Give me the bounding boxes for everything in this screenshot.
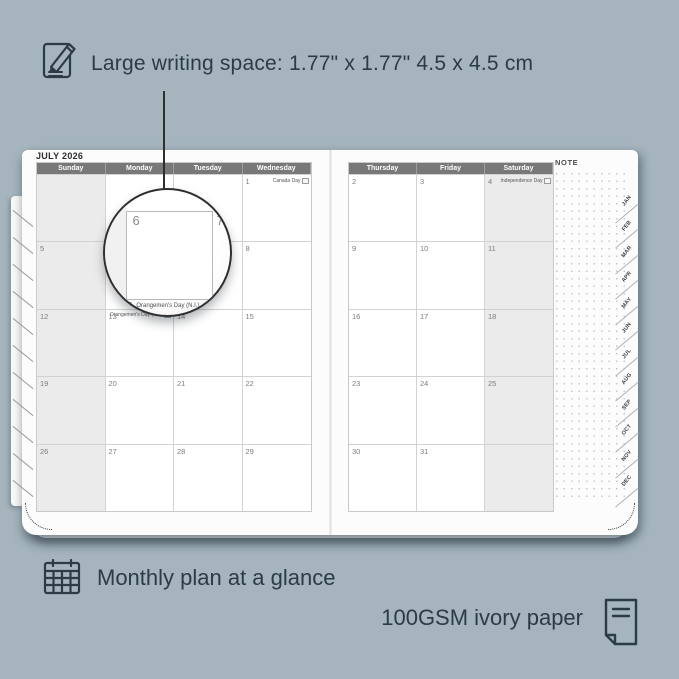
hatch-line: [13, 372, 34, 389]
day-cell: 28: [174, 444, 243, 511]
month-tab-label: SEP: [621, 398, 633, 411]
day-number: 25: [488, 379, 496, 388]
day-number: 22: [246, 379, 254, 388]
month-tab: APR: [616, 265, 638, 291]
day-number: 20: [109, 379, 117, 388]
month-tab-label: MAY: [621, 296, 633, 309]
page-edge-hatch: [10, 214, 38, 514]
day-number: 4: [488, 177, 492, 186]
day-cell: 26: [37, 444, 106, 511]
right-page-grid: Thursday Friday Saturday 2 3 4 Independe…: [348, 162, 554, 512]
day-cell: 14: [174, 309, 243, 376]
day-cell: 11: [485, 241, 553, 308]
day-number: 24: [420, 379, 428, 388]
day-cell: 22: [243, 376, 312, 443]
month-tab: MAR: [616, 239, 638, 265]
day-number: 29: [246, 447, 254, 456]
day-number: 17: [420, 312, 428, 321]
day-number: 1: [246, 177, 250, 186]
day-cell: 18: [485, 309, 553, 376]
magnified-weekend-column: [105, 205, 126, 303]
hatch-line: [13, 345, 34, 362]
day-number: 5: [40, 244, 44, 253]
day-number: 26: [40, 447, 48, 456]
day-cell: 9: [349, 241, 417, 308]
flag-icon: [544, 178, 551, 184]
month-tab-label: NOV: [621, 449, 633, 463]
month-tab: AUG: [616, 367, 638, 393]
magnified-holiday-row: 13 Orangemen's Day (N.I.): [105, 302, 230, 309]
weekday-header: Sunday: [37, 163, 106, 174]
month-tab-label: DEC: [621, 475, 633, 488]
pencil-note-icon: [40, 36, 82, 84]
paper-annotation-text: 100GSM ivory paper: [381, 601, 583, 635]
day-number: 30: [352, 447, 360, 456]
day-number: 28: [177, 447, 185, 456]
month-tab-label: APR: [621, 271, 633, 284]
magnified-peek-day: 13: [125, 302, 133, 309]
day-number: 31: [420, 447, 428, 456]
day-number: 19: [40, 379, 48, 388]
day-cell: 27: [106, 444, 175, 511]
magnified-holiday-text: Orangemen's Day (N.I.): [136, 303, 199, 309]
month-tab-label: OCT: [621, 424, 633, 437]
weekday-header: Saturday: [485, 163, 553, 174]
month-tab-label: JAN: [621, 194, 633, 207]
hatch-line: [13, 399, 34, 416]
day-cell: 29: [243, 444, 312, 511]
day-cell: [485, 444, 553, 511]
day-cell: 15: [243, 309, 312, 376]
month-title: JULY 2026: [36, 151, 83, 161]
hatch-line: [13, 237, 34, 254]
holiday-label: Canada Day: [273, 178, 309, 184]
month-tab: OCT: [616, 418, 638, 444]
day-cell: 31: [417, 444, 485, 511]
weekday-header: Friday: [417, 163, 485, 174]
day-number: 3: [420, 177, 424, 186]
holiday-text: Independence Day: [501, 178, 543, 184]
day-number: 15: [246, 312, 254, 321]
callout-connector-line: [163, 91, 165, 189]
day-number: 10: [420, 244, 428, 253]
month-tab: MAY: [616, 290, 638, 316]
month-tab: FEB: [616, 214, 638, 240]
month-tab-label: JUL: [621, 348, 633, 360]
hatch-line: [13, 426, 34, 443]
bottom-annotation-text: Monthly plan at a glance: [97, 561, 336, 595]
month-tabs: JAN FEB MAR APR MAY JUN JUL AUG SEP OCT …: [616, 188, 638, 494]
day-cell: 16: [349, 309, 417, 376]
hatch-line: [13, 264, 34, 281]
magnified-day-number: 6: [133, 213, 140, 228]
flag-icon: [302, 178, 309, 184]
magnified-day-number: 7: [217, 213, 224, 228]
month-tab: DEC: [616, 469, 638, 495]
day-number: 9: [352, 244, 356, 253]
holiday-label: Independence Day: [501, 178, 551, 184]
page-gutter: [329, 150, 332, 535]
month-tab: JUL: [616, 341, 638, 367]
day-cell: 30: [349, 444, 417, 511]
month-tab: NOV: [616, 443, 638, 469]
day-cell: [37, 174, 106, 241]
day-number: 2: [352, 177, 356, 186]
day-cell: 23: [349, 376, 417, 443]
weekday-header: Thursday: [349, 163, 417, 174]
hatch-line: [13, 210, 34, 227]
paper-icon: [599, 596, 643, 648]
month-tab-label: JUN: [621, 322, 633, 335]
day-number: 18: [488, 312, 496, 321]
day-cell: 19: [37, 376, 106, 443]
month-tab-label: AUG: [621, 372, 634, 386]
day-number: 11: [488, 244, 496, 253]
corner-stitch-left: [25, 503, 52, 530]
day-number: 12: [40, 312, 48, 321]
day-cell: 17: [417, 309, 485, 376]
weekday-header: Tuesday: [174, 163, 243, 174]
weekday-header: Wednesday: [243, 163, 312, 174]
day-number: 27: [109, 447, 117, 456]
flag-icon: [203, 303, 210, 309]
day-number: 21: [177, 379, 185, 388]
day-cell: 25: [485, 376, 553, 443]
day-cell: 10: [417, 241, 485, 308]
hatch-line: [13, 291, 34, 308]
day-cell: 24: [417, 376, 485, 443]
day-cell: 3: [417, 174, 485, 241]
note-label: NOTE: [555, 158, 578, 167]
day-cell: 2: [349, 174, 417, 241]
top-annotation-text: Large writing space: 1.77" x 1.77" 4.5 x…: [91, 47, 533, 81]
month-tab: JAN: [616, 188, 638, 214]
day-number: 8: [246, 244, 250, 253]
month-tab: JUN: [616, 316, 638, 342]
month-tab: SEP: [616, 392, 638, 418]
day-cell: 20: [106, 376, 175, 443]
hatch-line: [13, 318, 34, 335]
corner-stitch-right: [608, 503, 635, 530]
calendar-grid-icon: [42, 557, 82, 597]
day-cell: 1 Canada Day: [243, 174, 312, 241]
hatch-line: [13, 480, 34, 497]
day-cell: 13 Orangemen's Day (N.I.): [106, 309, 175, 376]
day-cell: 5: [37, 241, 106, 308]
holiday-text: Canada Day: [273, 178, 301, 184]
product-image: Large writing space: 1.77" x 1.77" 4.5 x…: [0, 0, 679, 679]
month-tab-label: FEB: [621, 220, 633, 233]
day-cell: 8: [243, 241, 312, 308]
magnifier-circle: 6 7 13 Orangemen's Day (N.I.): [103, 188, 232, 317]
month-tab-label: MAR: [621, 245, 634, 259]
day-number: 23: [352, 379, 360, 388]
day-number: 16: [352, 312, 360, 321]
hatch-line: [13, 453, 34, 470]
day-cell: 4 Independence Day: [485, 174, 553, 241]
day-cell: 12: [37, 309, 106, 376]
day-cell: 21: [174, 376, 243, 443]
